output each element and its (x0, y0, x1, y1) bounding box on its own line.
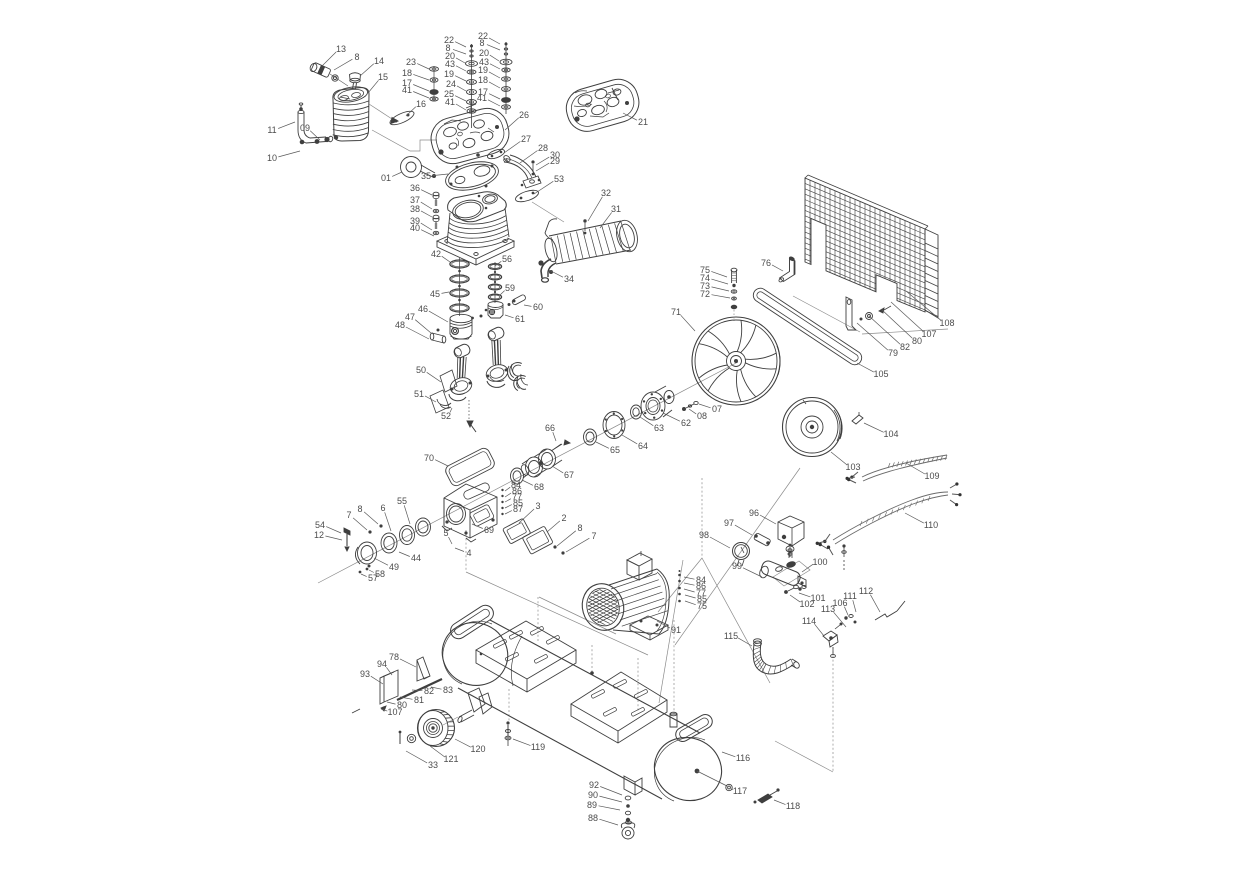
svg-text:96: 96 (749, 508, 759, 518)
svg-text:104: 104 (883, 429, 898, 439)
svg-text:23: 23 (406, 57, 416, 67)
svg-text:18: 18 (478, 75, 488, 85)
svg-text:36: 36 (410, 183, 420, 193)
svg-text:5: 5 (443, 528, 448, 538)
svg-text:54: 54 (315, 520, 325, 530)
svg-text:82: 82 (900, 342, 910, 352)
svg-text:47: 47 (405, 312, 415, 322)
svg-text:33: 33 (428, 760, 438, 770)
svg-text:8: 8 (357, 504, 362, 514)
svg-text:79: 79 (888, 348, 898, 358)
svg-text:48: 48 (395, 320, 405, 330)
svg-text:63: 63 (654, 423, 664, 433)
svg-text:107: 107 (921, 329, 936, 339)
svg-text:119: 119 (531, 742, 545, 752)
svg-text:62: 62 (681, 418, 691, 428)
svg-text:16: 16 (416, 99, 426, 109)
svg-text:88: 88 (588, 813, 598, 823)
svg-text:14: 14 (374, 56, 384, 66)
svg-text:87: 87 (513, 504, 523, 514)
svg-text:01: 01 (381, 173, 391, 183)
svg-text:6: 6 (380, 503, 385, 513)
svg-text:60: 60 (533, 302, 543, 312)
svg-text:27: 27 (521, 134, 531, 144)
svg-text:117: 117 (733, 786, 747, 796)
svg-text:52: 52 (441, 411, 451, 421)
svg-text:51: 51 (414, 389, 424, 399)
svg-text:118: 118 (786, 801, 800, 811)
svg-text:59: 59 (505, 283, 515, 293)
svg-text:81: 81 (414, 695, 424, 705)
svg-text:120: 120 (470, 744, 485, 754)
svg-text:32: 32 (601, 188, 611, 198)
svg-text:07: 07 (712, 404, 722, 414)
svg-text:78: 78 (389, 652, 399, 662)
svg-text:98: 98 (699, 530, 709, 540)
svg-text:105: 105 (873, 369, 888, 379)
svg-text:83: 83 (443, 685, 453, 695)
svg-text:13: 13 (336, 44, 346, 54)
svg-text:28: 28 (538, 143, 548, 153)
svg-text:18: 18 (402, 68, 412, 78)
svg-text:11: 11 (267, 125, 276, 135)
svg-text:57: 57 (368, 573, 378, 583)
svg-text:35: 35 (421, 171, 431, 181)
svg-text:19: 19 (478, 65, 488, 75)
svg-text:26: 26 (519, 110, 529, 120)
svg-text:09: 09 (300, 123, 310, 133)
svg-text:29: 29 (550, 156, 560, 166)
svg-text:72: 72 (700, 289, 710, 299)
svg-text:7: 7 (591, 531, 596, 541)
svg-text:114: 114 (802, 616, 816, 626)
svg-text:7: 7 (346, 510, 351, 520)
svg-text:90: 90 (588, 790, 598, 800)
svg-text:4: 4 (466, 548, 471, 558)
svg-text:110: 110 (924, 520, 938, 530)
svg-text:50: 50 (416, 365, 426, 375)
svg-text:41: 41 (477, 93, 487, 103)
svg-text:121: 121 (443, 754, 458, 764)
svg-text:15: 15 (378, 72, 388, 82)
svg-text:68: 68 (534, 482, 544, 492)
svg-text:108: 108 (939, 318, 954, 328)
svg-text:53: 53 (554, 174, 564, 184)
svg-text:89: 89 (587, 800, 597, 810)
svg-text:21: 21 (638, 117, 648, 127)
svg-text:75: 75 (697, 601, 707, 611)
svg-text:3: 3 (535, 501, 540, 511)
svg-text:103: 103 (845, 462, 860, 472)
svg-text:42: 42 (431, 249, 441, 259)
svg-text:113: 113 (821, 604, 835, 614)
svg-text:24: 24 (446, 79, 456, 89)
svg-text:2: 2 (561, 513, 566, 523)
svg-text:8: 8 (479, 38, 484, 48)
svg-text:61: 61 (515, 314, 525, 324)
svg-text:45: 45 (430, 289, 440, 299)
svg-text:44: 44 (411, 553, 421, 563)
svg-text:10: 10 (267, 153, 277, 163)
svg-text:19: 19 (444, 69, 454, 79)
svg-text:80: 80 (912, 336, 922, 346)
svg-text:38: 38 (410, 204, 420, 214)
svg-text:112: 112 (859, 586, 873, 596)
svg-text:111: 111 (843, 591, 857, 601)
svg-text:71: 71 (671, 307, 681, 317)
svg-text:41: 41 (445, 97, 455, 107)
svg-text:40: 40 (410, 223, 420, 233)
svg-text:99: 99 (732, 561, 742, 571)
svg-text:100: 100 (812, 557, 827, 567)
svg-text:49: 49 (389, 562, 399, 572)
svg-text:67: 67 (564, 470, 574, 480)
svg-text:93: 93 (360, 669, 370, 679)
svg-text:31: 31 (611, 204, 621, 214)
svg-text:94: 94 (377, 659, 387, 669)
svg-text:109: 109 (924, 471, 939, 481)
svg-text:8: 8 (354, 52, 359, 62)
svg-text:70: 70 (424, 453, 434, 463)
svg-text:56: 56 (502, 254, 512, 264)
svg-text:64: 64 (638, 441, 648, 451)
svg-text:12: 12 (314, 530, 324, 540)
svg-text:65: 65 (610, 445, 620, 455)
svg-text:41: 41 (402, 85, 412, 95)
svg-text:76: 76 (761, 258, 771, 268)
svg-text:34: 34 (564, 274, 574, 284)
svg-text:46: 46 (418, 304, 428, 314)
svg-text:43: 43 (445, 59, 455, 69)
svg-text:92: 92 (589, 780, 599, 790)
svg-text:107: 107 (387, 707, 402, 717)
svg-text:115: 115 (724, 631, 738, 641)
svg-text:116: 116 (736, 753, 750, 763)
svg-text:8: 8 (577, 523, 582, 533)
svg-text:69: 69 (484, 525, 494, 535)
svg-text:08: 08 (697, 411, 707, 421)
svg-text:102: 102 (799, 599, 814, 609)
svg-text:55: 55 (397, 496, 407, 506)
svg-text:66: 66 (545, 423, 555, 433)
svg-text:91: 91 (671, 625, 681, 635)
svg-text:97: 97 (724, 518, 734, 528)
